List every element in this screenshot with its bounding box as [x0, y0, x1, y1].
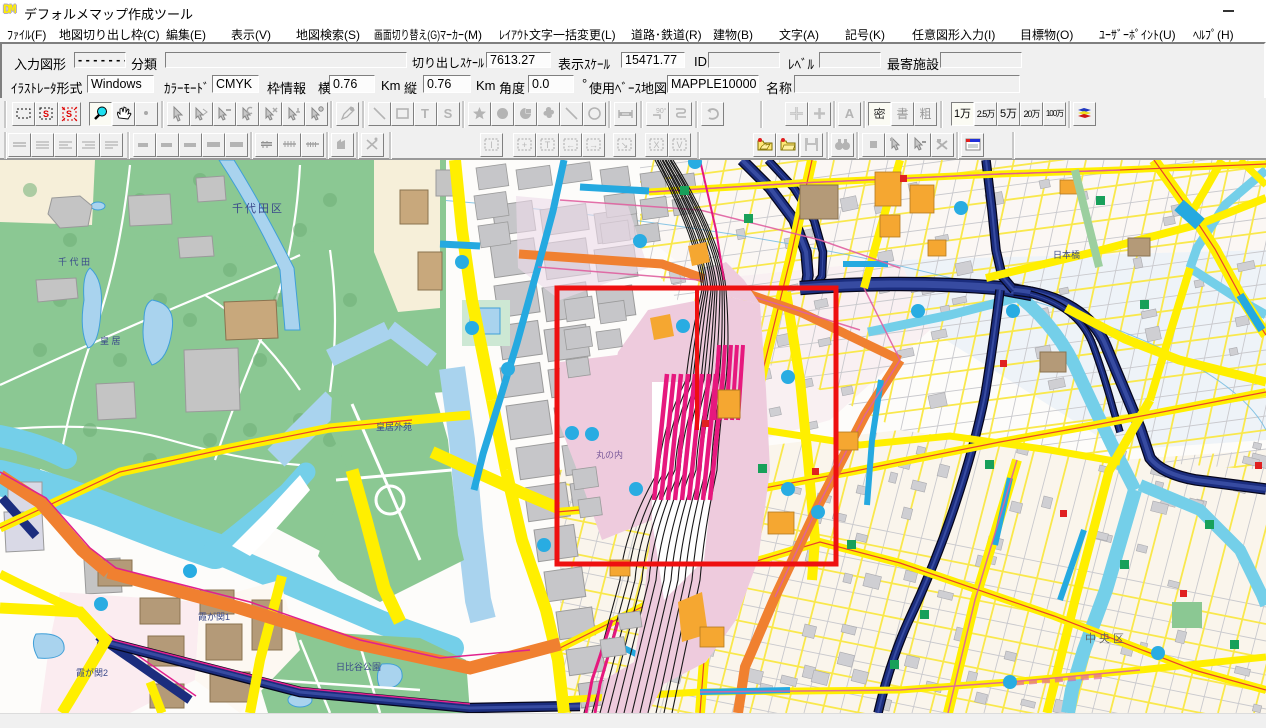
- svg-text:S: S: [66, 109, 72, 119]
- svg-text:千代田区: 千代田区: [232, 202, 284, 215]
- svg-text:T: T: [545, 140, 551, 150]
- svg-text:+: +: [522, 140, 527, 150]
- svg-text:皇居外苑: 皇居外苑: [376, 421, 412, 432]
- svg-text:A: A: [845, 106, 855, 121]
- svg-text:日本橋: 日本橋: [1053, 249, 1080, 260]
- svg-text:皇 居: 皇 居: [100, 335, 121, 346]
- svg-text:千 代 田: 千 代 田: [58, 257, 90, 267]
- svg-text:S: S: [43, 109, 49, 119]
- svg-text:←: ←: [566, 140, 575, 150]
- svg-text:90°: 90°: [656, 107, 666, 115]
- svg-text:↘: ↘: [621, 140, 629, 150]
- svg-text:I: I: [490, 140, 493, 150]
- svg-text:霞が関1: 霞が関1: [198, 611, 230, 622]
- svg-text:→: →: [589, 140, 598, 150]
- svg-text:V: V: [676, 140, 682, 150]
- svg-text:霞が関2: 霞が関2: [76, 667, 108, 678]
- svg-text:中央区: 中央区: [1085, 632, 1127, 645]
- svg-text:S: S: [444, 106, 453, 121]
- svg-text:T: T: [421, 106, 429, 121]
- svg-text:日比谷公園: 日比谷公園: [336, 661, 381, 672]
- svg-text:X: X: [653, 140, 659, 150]
- svg-text:丸の内: 丸の内: [596, 449, 623, 460]
